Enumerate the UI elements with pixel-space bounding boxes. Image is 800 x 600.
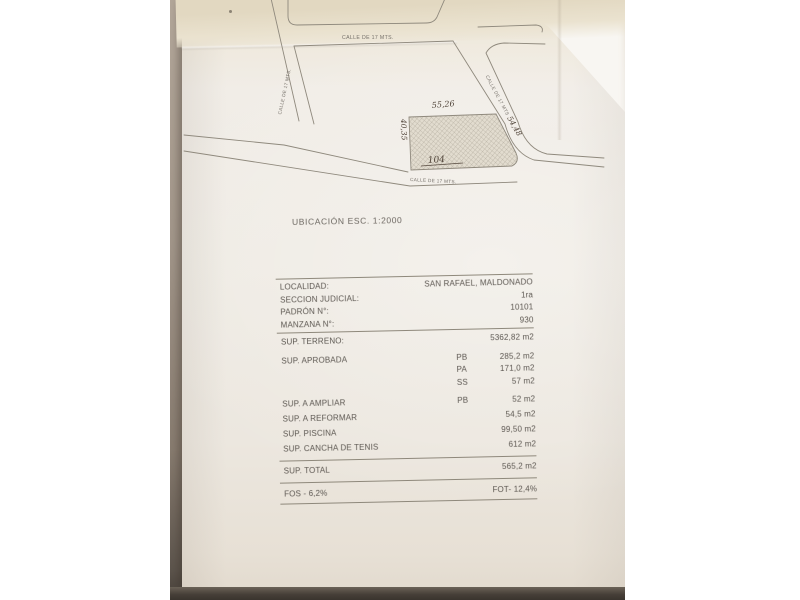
fot-value: FOT- 12,4% [492,482,537,496]
parcel-info-block: LOCALIDAD: SAN RAFAEL, MALDONADO SECCION… [276,274,534,332]
row-value: 565,2 m2 [479,460,537,474]
parcel-dim-left: 40,35 [399,118,409,141]
plan-sheet: CALLE DE 17 MTS. CALLE DE 17 MTS CALLE D… [182,0,625,589]
block-outline-top-center [288,0,447,25]
street-line-top-south [294,41,453,46]
row-value: 171,0 m2 [476,362,534,376]
location-sketch: CALLE DE 17 MTS. CALLE DE 17 MTS CALLE D… [182,0,625,215]
row-value: 54,5 m2 [477,406,535,422]
row-value: 99,50 m2 [478,421,536,437]
scale-caption: UBICACIÓN ESC. 1:2000 [292,215,403,227]
street-line-bottom-north [184,135,408,172]
row-label [282,384,457,388]
row-code: PB [457,393,477,408]
row-code: PA [456,364,476,377]
street-label-right: CALLE DE 17 MTS [485,74,510,116]
row-label: SUP. TOTAL [284,462,479,479]
street-label-bottom: CALLE DE 17 MTS. [410,177,457,184]
parcel-dim-top: 55,26 [431,99,455,110]
aprobada-block: SUP. APROBADA PB 285,2 m2 PA 171,0 m2 SS… [277,344,535,395]
street-line-top-north [478,25,542,32]
row-code: PB [456,351,476,364]
row-value: 5362,82 m2 [476,331,534,345]
works-block: SUP. A AMPLIAR PB 52 m2 SUP. A REFORMAR … [278,389,536,460]
row-code: SS [457,376,477,389]
row-value: 930 [475,314,533,328]
row-value: 285,2 m2 [476,350,534,364]
row-value: 10101 [475,301,533,315]
row-value: 57 m2 [477,375,535,389]
desk-surface [170,587,625,600]
row-label [282,372,457,376]
row-label: SUP. CANCHA DE TENIS [283,438,458,457]
document-photo: CALLE DE 17 MTS. CALLE DE 17 MTS CALLE D… [170,0,625,600]
table-row: SUP. TOTAL 565,2 m2 [284,460,537,478]
row-value: 52 m2 [477,391,535,407]
street-label-top: CALLE DE 17 MTS. [342,35,394,41]
fos-value: FOS - 6,2% [284,486,328,500]
street-label-left: CALLE DE 17 MTS. [277,68,292,115]
row-value: 1ra [475,289,533,303]
surface-table: LOCALIDAD: SAN RAFAEL, MALDONADO SECCION… [276,273,538,504]
row-value: 612 m2 [478,436,536,452]
parcel-outline [409,114,517,170]
